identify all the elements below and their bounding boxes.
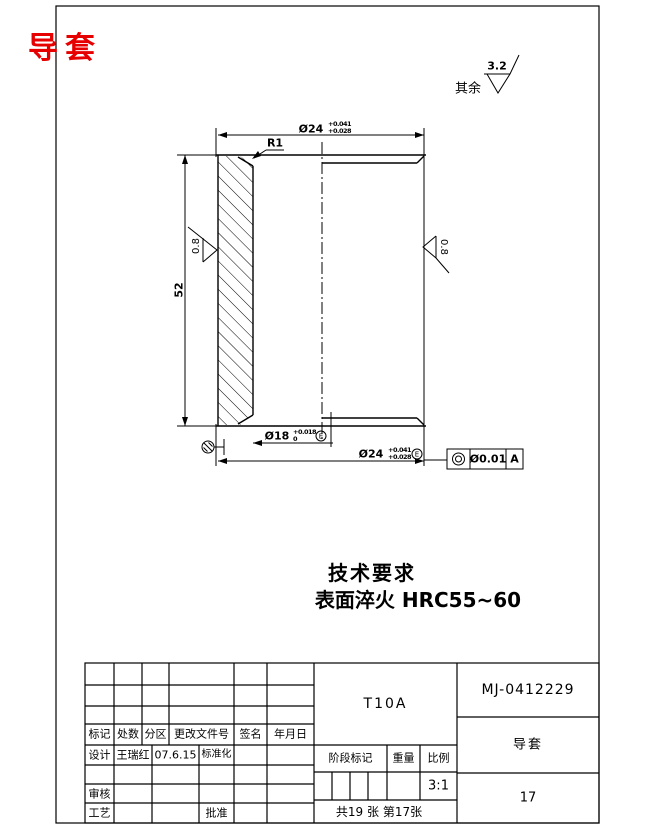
tb-stage-mark-label: 阶段标记 — [329, 753, 373, 764]
section-hatching — [218, 156, 253, 425]
tb-drawing-number: MJ-0412229 — [481, 683, 574, 697]
dim-bore-tolerance: +0.018 0 — [293, 429, 316, 443]
envelope-symbol-od: E — [412, 449, 423, 460]
dim-od-top-tolerance: +0.041 +0.028 — [328, 121, 351, 135]
tb-count-label: 处数 — [117, 729, 139, 740]
roughness-right-value: 0.8 — [438, 239, 448, 255]
tb-zone-label: 分区 — [145, 729, 167, 740]
page-title: 导套 — [28, 34, 102, 64]
linework-layer — [0, 0, 654, 830]
tol-lower: 0 — [293, 436, 316, 443]
tb-designer-name: 王瑞红 — [117, 750, 150, 761]
tb-design-label: 设计 — [89, 750, 111, 761]
drawing-sheet: 导套 其余 3.2 Ø24 +0.041 +0.028 R1 52 0.8 0.… — [0, 0, 654, 830]
tb-scale-value: 3:1 — [428, 780, 449, 793]
tech-req-line1: 表面淬火 HRC55~60 — [315, 590, 521, 610]
tb-date-label: 年月日 — [274, 729, 307, 740]
concentricity-icon — [453, 453, 465, 465]
dim-od-top-nominal: Ø24 — [299, 124, 324, 135]
tech-req-title: 技术要求 — [328, 563, 416, 583]
tb-part-name: 导套 — [513, 739, 543, 752]
envelope-symbol-bore: E — [316, 431, 327, 442]
tb-scale-label: 比例 — [428, 753, 450, 764]
tb-signature-label: 签名 — [240, 729, 262, 740]
dim-od-bottom-tolerance: +0.041 +0.028 — [388, 447, 411, 461]
tol-lower: +0.028 — [388, 454, 411, 461]
dim-length-value: 52 — [174, 282, 185, 297]
fillet-label: R1 — [267, 138, 283, 149]
tb-check-label: 审核 — [89, 788, 111, 799]
dim-od-bottom-nominal: Ø24 — [359, 449, 384, 460]
roughness-left-value: 0.8 — [192, 238, 202, 254]
tb-mark-label: 标记 — [89, 729, 111, 740]
tb-material-grade: T10A — [364, 697, 408, 711]
tb-process-label: 工艺 — [89, 808, 111, 819]
tb-sheet-info: 共19 张 第17张 — [336, 806, 422, 818]
general-roughness-label: 其余 — [455, 83, 481, 96]
tb-weight-label: 重量 — [393, 753, 415, 764]
tb-approve-label: 批准 — [206, 808, 228, 819]
fcf-tolerance-value: Ø0.01 — [470, 454, 507, 465]
tb-change-doc-label: 更改文件号 — [174, 729, 229, 740]
datum-symbol — [202, 439, 224, 455]
general-roughness-value: 3.2 — [487, 61, 507, 72]
dim-bore-nominal: Ø18 — [265, 431, 290, 442]
tb-sheet-number: 17 — [520, 792, 537, 805]
concentricity-icon-inner — [456, 456, 462, 462]
tol-lower: +0.028 — [328, 128, 351, 135]
fcf-datum-letter: A — [510, 454, 519, 465]
tb-standardization-label: 标准化 — [202, 750, 232, 760]
tb-design-date: 07.6.15 — [155, 750, 197, 761]
